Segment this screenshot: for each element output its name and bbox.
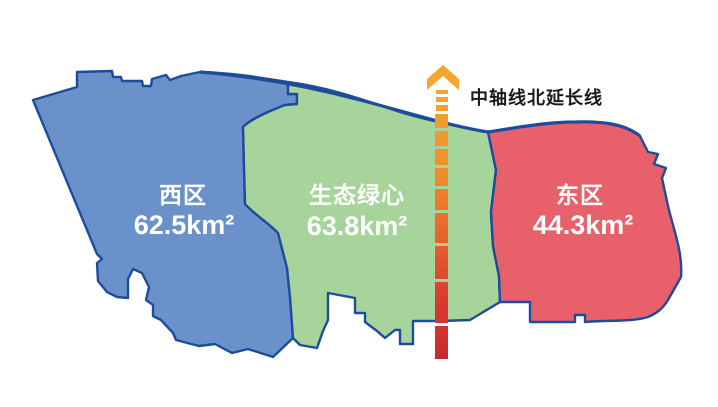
region-green-heart-name: 生态绿心 bbox=[309, 182, 405, 208]
region-east-name: 东区 bbox=[556, 182, 604, 208]
planning-map: 中轴线北延长线 西区 62.5km² 生态绿心 63.8km² 东区 44.3k… bbox=[0, 0, 718, 407]
map-canvas: 中轴线北延长线 西区 62.5km² 生态绿心 63.8km² 东区 44.3k… bbox=[0, 0, 718, 407]
axis-arrow-icon bbox=[427, 65, 459, 90]
region-west-area: 62.5km² bbox=[134, 210, 235, 240]
axis-label: 中轴线北延长线 bbox=[470, 87, 603, 108]
region-green-heart-area: 63.8km² bbox=[307, 211, 408, 241]
region-east-area: 44.3km² bbox=[533, 210, 634, 240]
region-west-name: 西区 bbox=[159, 182, 207, 208]
